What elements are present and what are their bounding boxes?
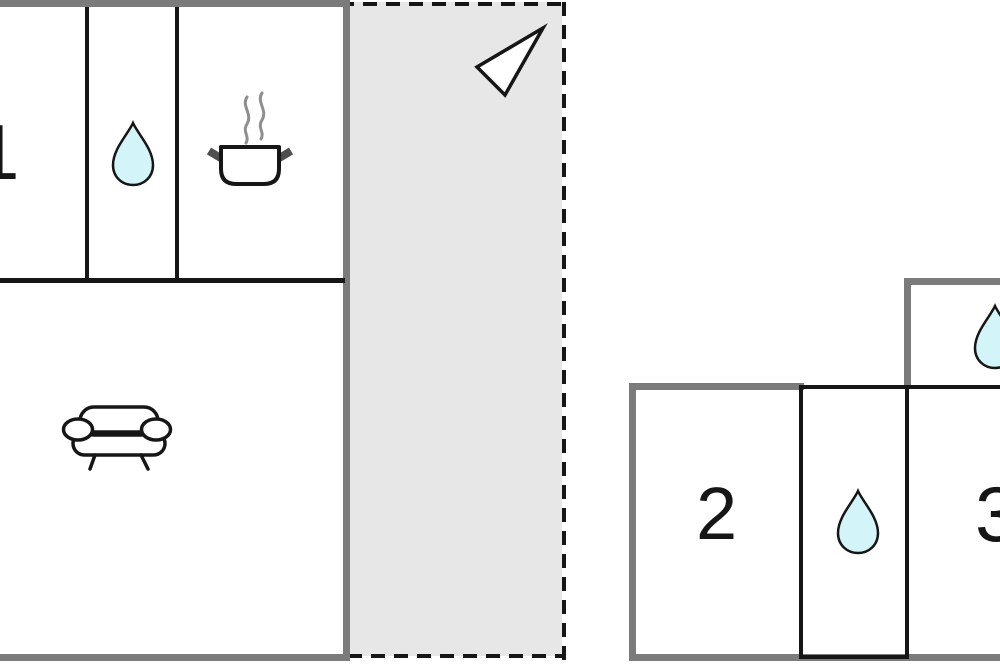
outer-wall (0, 654, 350, 661)
outer-wall (343, 0, 350, 661)
inner-wall (85, 7, 89, 280)
outer-wall (629, 383, 636, 661)
pot-body (221, 147, 279, 184)
sofa-armrest-left (64, 419, 93, 440)
sofa-leg-right (141, 455, 148, 469)
inner-wall (905, 385, 909, 658)
outer-wall (904, 278, 911, 387)
steam-line (245, 97, 248, 143)
floor-plan-graphics (0, 0, 1000, 666)
sofa-leg-left (90, 455, 95, 469)
inner-wall (799, 385, 1000, 389)
outer-wall (629, 383, 804, 390)
outer-wall (904, 278, 1000, 285)
terrace-area (348, 2, 562, 656)
steam-lines (245, 93, 263, 143)
room-label-2: 2 (696, 477, 737, 551)
inner-wall (799, 385, 803, 658)
room-label-3: 3 (975, 475, 1000, 553)
room-label-1: 1 (0, 113, 19, 191)
water-drop-icon (838, 491, 878, 553)
sofa-armrest-right (142, 419, 171, 440)
inner-wall (799, 655, 909, 659)
sofa-icon (64, 407, 171, 469)
water-drop-icon (113, 123, 153, 185)
outer-wall (0, 0, 350, 7)
cooking-pot-icon (209, 93, 291, 184)
inner-wall (175, 7, 179, 280)
water-drop-icon (975, 306, 1000, 368)
inner-wall (0, 278, 345, 283)
floor-plan: 1 2 3 (0, 0, 1000, 666)
steam-line (260, 93, 263, 139)
